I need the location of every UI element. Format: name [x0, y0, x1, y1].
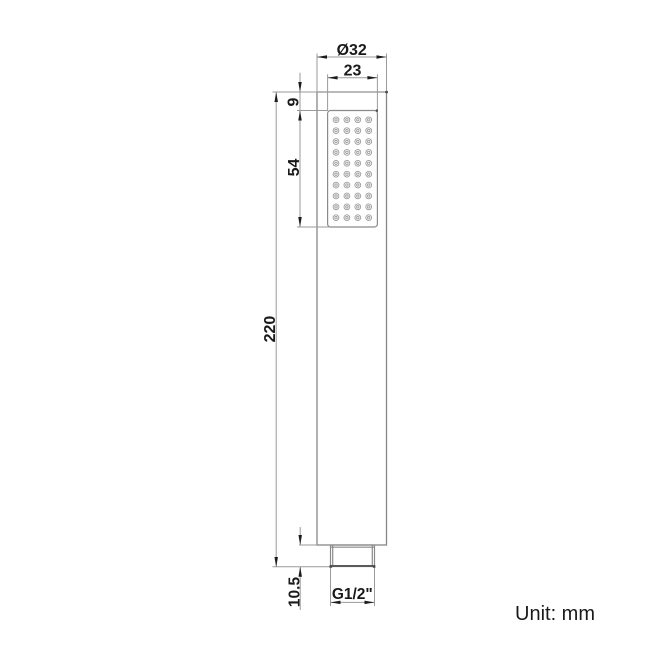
- svg-text:9: 9: [286, 97, 303, 106]
- svg-text:23: 23: [344, 63, 362, 80]
- svg-text:Unit: mm: Unit: mm: [515, 603, 595, 625]
- svg-text:G1/2": G1/2": [332, 586, 373, 603]
- svg-text:Ø32: Ø32: [337, 42, 367, 59]
- svg-text:220: 220: [262, 316, 279, 343]
- svg-text:10.5: 10.5: [287, 577, 304, 608]
- svg-text:54: 54: [286, 159, 303, 177]
